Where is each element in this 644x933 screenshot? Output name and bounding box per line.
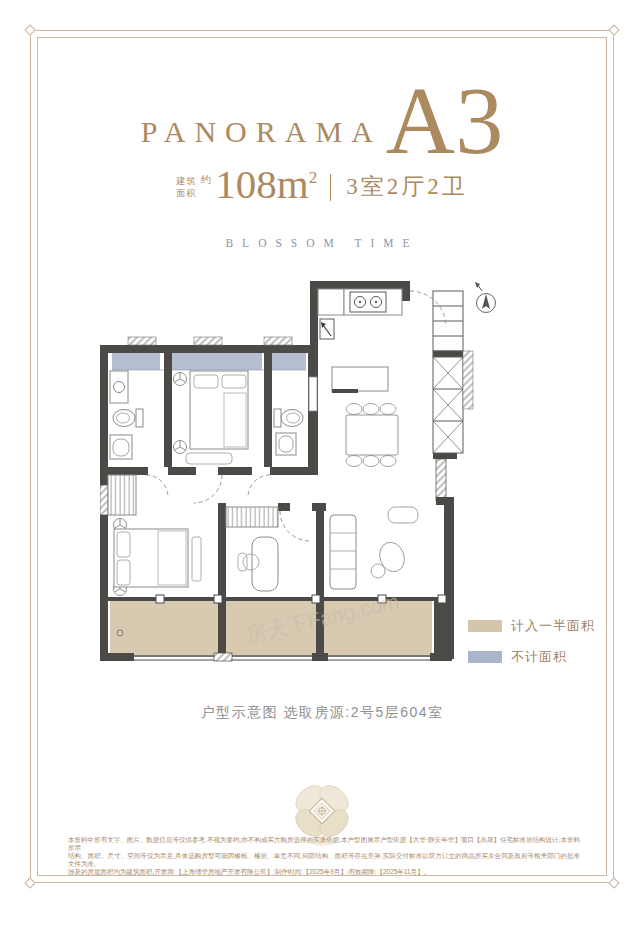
area-prefix-label: 建筑 面积 [176,175,196,199]
floorplan-drawing: 房天下Fang.com [100,281,500,671]
disclaimer-text: 本资料中所有文字、图片、数据信息等仅供参考,不视为要约,亦不构成买方购房选择的实… [68,836,580,876]
area-value: 108m2 [215,164,317,205]
ac-symbol [174,373,187,454]
no-area-swatch [468,651,502,663]
room-spec: 3室2厅2卫 [346,171,468,202]
window-band [112,353,306,370]
corner-ornament-bottom-left [24,877,35,888]
subtitle: BLOSSOM TIME [0,237,644,249]
corner-ornament-bottom-right [608,877,619,888]
area-spec-row: 建筑 面积 约 108m2 3室2厅2卫 [0,164,644,205]
study-room [226,507,278,591]
entry-arrow-icon [320,319,334,339]
floorplan-poster: PANORAMA A3 建筑 面积 约 108m2 3室2厅2卫 BLOSSOM… [0,0,644,933]
corner-ornament-top-left [24,24,35,35]
half-area-swatch [468,620,502,632]
compass-icon [475,282,496,313]
kitchen [318,289,446,339]
approx-label: 约 [201,173,211,187]
dining-set [346,404,398,467]
area-legend: 计入一半面积 不计面积 [468,617,595,679]
bathroom-left [110,371,143,459]
master-bedroom [108,475,201,596]
corner-ornament-top-right [608,24,619,35]
bedroom-top [174,371,249,464]
disclaimer-line: 涉及的房屋面积均为建筑面积,开发商:【上海璟华房地产开发有限公司】;制作时间:【… [68,868,580,876]
legend-item-half-area: 计入一半面积 [468,617,595,635]
shaft-core [433,291,473,453]
disclaimer-line: 本资料中所有文字、图片、数据信息等仅供参考,不视为要约,亦不构成买方购房选择的实… [68,836,580,852]
living-dining [330,367,418,589]
disclaimer-line: 结构、面积、尺寸、空间等仅为示意,具体选购房型可能因楼栋、楼层、单元不同,局部结… [68,852,580,868]
vertical-divider [330,174,331,201]
unit-name: A3 [386,78,503,164]
lounge-chair [371,539,408,578]
brand-title: PANORAMA [141,115,382,149]
stove-icon [350,292,386,312]
sofa [330,515,356,589]
caption: 户型示意图 选取房源:2号5层604室 [0,704,644,722]
title-row: PANORAMA A3 [0,78,644,164]
legend-item-no-area: 不计面积 [468,648,595,666]
